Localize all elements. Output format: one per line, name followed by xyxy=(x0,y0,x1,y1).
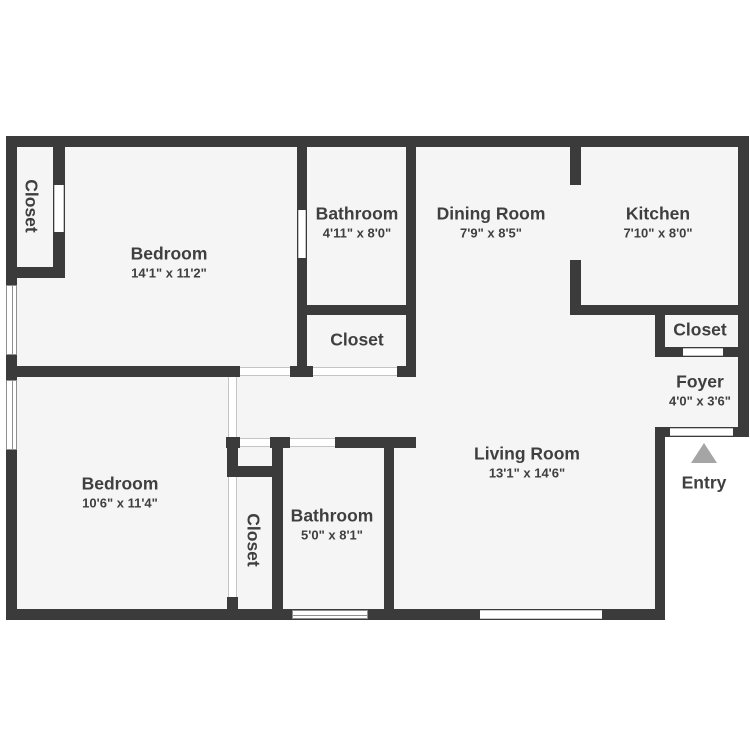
room-label-bedroom-top: Bedroom 14'1" x 11'2" xyxy=(131,245,208,282)
entry-door-opening xyxy=(670,428,733,436)
room-label-foyer: Foyer 4'0" x 3'6" xyxy=(669,373,731,410)
door-opening xyxy=(683,348,723,356)
door-opening xyxy=(240,438,270,447)
entry-label: Entry xyxy=(682,473,727,494)
entry-arrow-icon xyxy=(691,443,717,463)
room-label-closet-mid: Closet xyxy=(330,331,383,350)
wall xyxy=(406,147,416,377)
room-label-closet-top-left: Closet xyxy=(22,179,41,232)
door-opening xyxy=(298,210,306,258)
door-opening xyxy=(313,367,397,376)
wall xyxy=(655,437,665,620)
door-opening xyxy=(290,438,335,447)
room-label-bathroom-top: Bathroom 4'11" x 8'0" xyxy=(316,205,399,242)
window xyxy=(6,285,17,355)
wall xyxy=(227,466,278,477)
wall xyxy=(6,136,749,147)
wall xyxy=(6,267,65,278)
door-opening xyxy=(228,377,237,437)
window xyxy=(292,610,368,619)
wall xyxy=(335,437,416,448)
room-label-bedroom-bottom: Bedroom 10'6" x 11'4" xyxy=(82,475,159,512)
room-label-dining-room: Dining Room 7'9" x 8'5" xyxy=(437,205,546,242)
wall xyxy=(297,147,307,377)
entry-alcove xyxy=(665,437,750,620)
wall xyxy=(570,147,581,185)
sliding-door-opening xyxy=(480,610,602,619)
door-opening xyxy=(54,185,64,232)
window xyxy=(6,380,17,450)
wall xyxy=(384,448,394,609)
room-label-living-room: Living Room 13'1" x 14'6" xyxy=(474,445,580,482)
wall xyxy=(297,305,416,315)
wall xyxy=(6,366,240,377)
room-label-closet-kitchen: Closet xyxy=(673,321,726,340)
room-label-bathroom-bottom: Bathroom 5'0" x 8'1" xyxy=(291,507,374,544)
wall xyxy=(272,437,283,610)
door-opening xyxy=(240,367,290,376)
room-label-closet-bottom: Closet xyxy=(244,513,263,566)
floor-plan: Closet Bedroom 14'1" x 11'2" Bathroom 4'… xyxy=(0,0,750,750)
room-label-kitchen: Kitchen 7'10" x 8'0" xyxy=(623,205,692,242)
wall xyxy=(738,147,749,437)
wall xyxy=(227,597,238,609)
door-opening xyxy=(228,477,237,597)
